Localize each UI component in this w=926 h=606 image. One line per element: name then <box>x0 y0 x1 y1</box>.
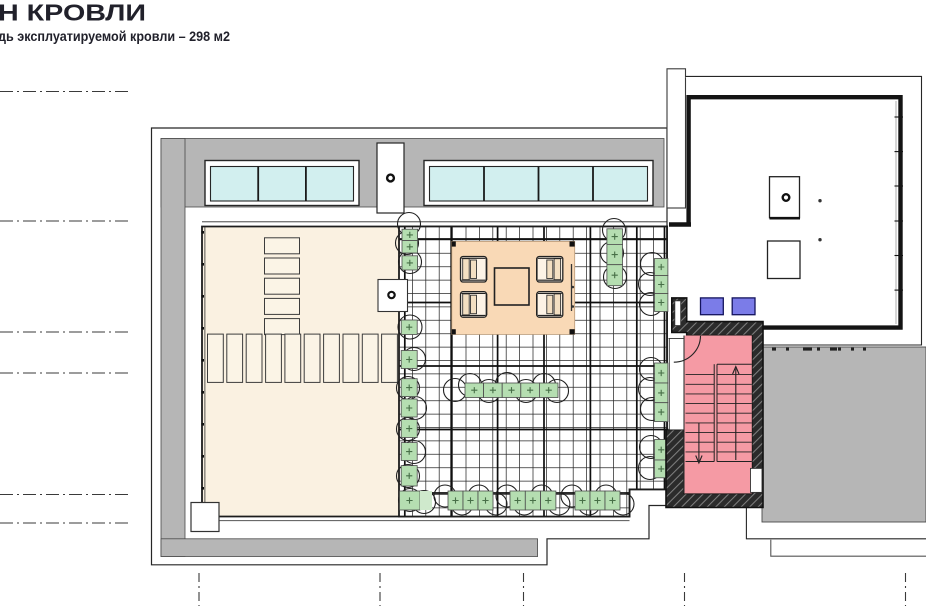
svg-text:дь эксплуатируемой кровли – 29: дь эксплуатируемой кровли – 298 м2 <box>0 29 230 44</box>
svg-text:Н КРОВЛИ: Н КРОВЛИ <box>0 0 146 26</box>
